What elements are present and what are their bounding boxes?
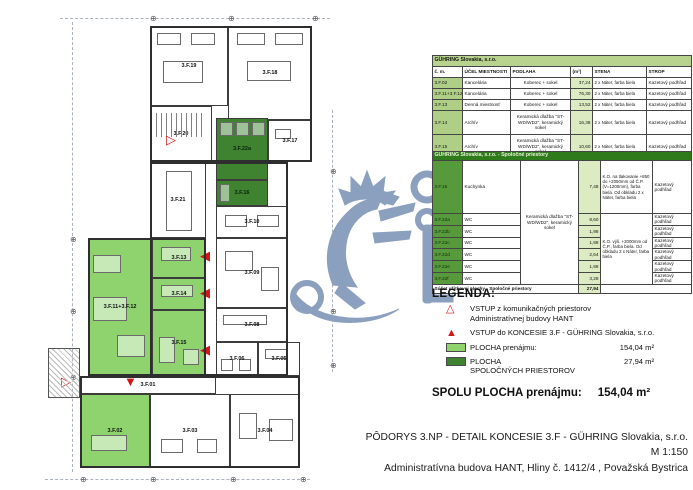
rent-cell: 3.F.14	[433, 111, 463, 135]
legend-item-rent-area: PLOCHA prenájmu: 154,04 m²	[444, 343, 684, 353]
common-cell: 3.F.22a	[433, 214, 463, 226]
grid-marker-icon	[150, 15, 157, 23]
room-3.F.08: 3.F.08	[216, 308, 288, 342]
entry-filled-triangle-icon	[200, 249, 210, 262]
room-3.F.05: 3.F.05	[258, 342, 300, 376]
room-3.F.22a: 3.F.22a	[216, 118, 268, 180]
common-cell: 1,98	[579, 237, 601, 249]
common-cell: Kazetový podhľad	[653, 261, 692, 273]
room-3.F.14: 3.F.14	[152, 278, 206, 310]
total-area-value: 154,04 m²	[598, 387, 650, 399]
room-label: 3.F.11+3.F.12	[89, 304, 151, 310]
room-3.F.16: 3.F.16	[216, 180, 268, 206]
common-color-swatch	[446, 357, 466, 366]
common-cell: WC	[463, 225, 521, 237]
floor-note: Keramická dlažba "ST-WD/WD2", keramický …	[521, 161, 579, 285]
column-header: STENA	[593, 67, 647, 78]
column-header: (m²)	[571, 67, 593, 78]
common-cell: 3.F.22d	[433, 249, 463, 261]
grid-marker-icon	[230, 476, 237, 484]
legend-item-entry-hant: VSTUP z komunikačných priestorov Adminis…	[444, 304, 684, 324]
rent-cell: Keramická dlažba "ST-WD/WD2", keramický …	[511, 111, 571, 135]
legend-item-label: VSTUP z komunikačných priestorov Adminis…	[470, 304, 591, 324]
rent-cell: 76,30	[571, 89, 593, 100]
common-cell: Kazetový podhľad	[653, 214, 692, 226]
grid-marker-icon	[312, 15, 319, 23]
rent-cell: Kazetový podhľad	[647, 89, 692, 100]
room-label: 3.F.01	[81, 382, 215, 388]
grid-marker-icon	[300, 476, 307, 484]
grid-marker-icon	[70, 308, 77, 316]
rent-cell: Kancelária	[463, 89, 511, 100]
furniture	[275, 33, 303, 45]
column-header: č. m.	[433, 67, 463, 78]
room-label: 3.F.10	[217, 219, 287, 225]
rent-color-swatch	[446, 343, 466, 352]
grid-marker-icon	[228, 15, 235, 23]
grid-marker-icon	[70, 236, 77, 244]
legend-item-label: VSTUP do KONCESIE 3.F - GÜHRING Slovakia…	[470, 328, 654, 338]
room-3.F.06: 3.F.06	[216, 342, 258, 376]
grid-marker-icon	[330, 362, 337, 370]
room-3.F.21: 3.F.21	[150, 162, 206, 238]
room-3.F.18: 3.F.18	[228, 26, 312, 120]
rent-cell: Archív	[463, 111, 511, 135]
entry-filled-triangle-icon	[200, 343, 210, 356]
rent-cell: 2 x Náter, farba biela	[593, 111, 647, 135]
common-cell: Kuchynka	[463, 161, 521, 214]
entry-filled-triangle-icon	[124, 375, 137, 388]
room-3.F.11+3.F.12: 3.F.11+3.F.12	[88, 238, 152, 376]
common-cell: 3.F.16	[433, 161, 463, 214]
room-label: 3.F.15	[153, 340, 205, 346]
room-label: 3.F.09	[217, 270, 287, 276]
furniture	[252, 122, 265, 136]
common-cell: Kazetový podhľad	[653, 249, 692, 261]
rent-cell: 3.F.13	[433, 100, 463, 111]
room-label: 3.F.08	[217, 322, 287, 328]
common-cell: WC	[463, 214, 521, 226]
furniture	[225, 251, 253, 271]
rent-cell: Koberec + sokel	[511, 100, 571, 111]
common-cell: Kazetový podhľad	[653, 225, 692, 237]
room-label: 3.F.02	[81, 428, 149, 434]
room-label: 3.F.16	[217, 190, 267, 196]
legend-item-label: PLOCHA prenájmu:	[470, 343, 537, 353]
rent-cell: 13,52	[571, 100, 593, 111]
common-cell: 1,98	[579, 261, 601, 273]
room-label: 3.F.19	[151, 63, 227, 69]
room-label: 3.F.04	[231, 428, 299, 434]
drawing-scale: M 1:150	[308, 445, 688, 460]
room-label: 3.F.17	[269, 138, 311, 144]
common-cell: 3,28	[579, 273, 601, 285]
drawing-sheet: 3.F.193.F.183.F.203.F.173.F.22a3.F.163.F…	[0, 0, 693, 490]
furniture	[157, 33, 181, 45]
common-cell: Kazetový podhľad	[653, 237, 692, 249]
room-3.F.01: 3.F.01	[80, 376, 216, 394]
common-cell: Kazetový podhľad	[653, 273, 692, 285]
room-label: 3.F.20	[151, 131, 211, 137]
room-3.F.04: 3.F.04	[230, 394, 300, 468]
balcony	[48, 348, 80, 398]
rent-cell: Kancelária	[463, 78, 511, 89]
common-cell: 3.F.22f	[433, 273, 463, 285]
room-3.F.10: 3.F.10	[216, 206, 288, 238]
rent-cell: 2 x Náter, farba biela	[593, 100, 647, 111]
room-3.F.20: 3.F.20	[150, 106, 212, 162]
common-cell: 3.F.22e	[433, 261, 463, 273]
total-area-label: SPOLU PLOCHA prenájmu:	[432, 387, 582, 399]
common-table-title: GÜHRING Slovakia, s.r.o. - Spoločné prie…	[433, 152, 692, 161]
rent-cell: Denná miestnosť	[463, 100, 511, 111]
furniture	[91, 435, 127, 451]
rent-cell: 3.F.11+3.F.12	[433, 89, 463, 100]
common-cell: Kazetový podhľad	[653, 161, 692, 214]
column-header: PODLAHA	[511, 67, 571, 78]
rent-cell: Kazetový podhľad	[647, 100, 692, 111]
room-label: 3.F.06	[217, 356, 257, 362]
grid-marker-icon	[80, 476, 87, 484]
furniture	[197, 439, 217, 453]
rent-cell: 3.F.02	[433, 78, 463, 89]
common-cell: 7,48	[579, 161, 601, 214]
common-cell: 8,60	[579, 214, 601, 226]
room-label: 3.F.03	[151, 428, 229, 434]
column-header: ÚČEL MIESTNOSTI	[463, 67, 511, 78]
room-label: 3.F.21	[151, 197, 205, 203]
rent-cell: Kazetový podhľad	[647, 78, 692, 89]
common-cell: 3.F.22c	[433, 237, 463, 249]
rent-cell: Koberec + sokel	[511, 78, 571, 89]
common-cell: WC	[463, 237, 521, 249]
room-label: 3.F.18	[229, 70, 311, 76]
room-3.F.02: 3.F.02	[80, 394, 150, 468]
rent-cell: 37,24	[571, 78, 593, 89]
furniture	[220, 122, 233, 136]
grid-marker-icon	[330, 308, 337, 316]
room-3.F.13: 3.F.13	[152, 238, 206, 278]
rent-cell: 2 x Náter, farba biela	[593, 78, 647, 89]
legend: LEGENDA: VSTUP z komunikačných priestoro…	[432, 288, 684, 399]
legend-item-label: PLOCHA SPOLOČNÝCH PRIESTOROV	[470, 357, 575, 377]
furniture	[183, 349, 199, 365]
rent-area-value: 154,04 m²	[620, 343, 684, 353]
furniture	[236, 122, 249, 136]
common-cell: WC	[463, 261, 521, 273]
title-block: PÔDORYS 3.NP - DETAIL KONCESIE 3.F - GÜH…	[308, 430, 688, 476]
room-3.F.03: 3.F.03	[150, 394, 230, 468]
common-area-value: 27,94 m²	[624, 357, 684, 367]
common-cell: 3.F.22b	[433, 225, 463, 237]
room-label: 3.F.22a	[217, 146, 267, 152]
total-area-row: SPOLU PLOCHA prenájmu: 154,04 m²	[432, 387, 684, 399]
common-cell: WC	[463, 249, 521, 261]
common-cell: 2,64	[579, 249, 601, 261]
room-label: 3.F.05	[259, 356, 299, 362]
legend-item-common-area: PLOCHA SPOLOČNÝCH PRIESTOROV 27,94 m²	[444, 357, 684, 377]
grid-marker-icon	[330, 168, 337, 176]
rent-cell: Koberec + sokel	[511, 89, 571, 100]
rent-cell: 2 x Náter, farba biela	[593, 89, 647, 100]
room-3.F.17: 3.F.17	[268, 120, 312, 162]
triangle-filled-icon	[444, 328, 470, 339]
furniture	[117, 335, 145, 357]
furniture	[161, 439, 183, 453]
grid-marker-icon	[150, 476, 157, 484]
grid-marker-icon	[330, 236, 337, 244]
furniture	[239, 413, 257, 439]
furniture	[237, 33, 265, 45]
furniture	[191, 33, 215, 45]
legend-item-entry-koncesia: VSTUP do KONCESIE 3.F - GÜHRING Slovakia…	[444, 328, 684, 339]
common-cell: 1,98	[579, 225, 601, 237]
wall-note-1: K.O. na tlakovanie +850 do +2050mm od Č.…	[601, 161, 653, 214]
room-3.F.15: 3.F.15	[152, 310, 206, 376]
column-header: STROP	[647, 67, 692, 78]
entry-filled-triangle-icon	[200, 286, 210, 299]
entry-outline-triangle-icon	[166, 133, 176, 146]
common-cell: WC	[463, 273, 521, 285]
rent-cell: Kazetový podhľad	[647, 111, 692, 135]
building-address: Administratívna budova HANT, Hliny č. 14…	[308, 461, 688, 476]
wall-note-2: K.O. výš. +2000mm od Č.P., farba biela. …	[601, 214, 653, 285]
common-area-table: GÜHRING Slovakia, s.r.o. - Spoločné prie…	[432, 151, 692, 294]
room-3.F.19: 3.F.19	[150, 26, 228, 106]
room-3.F.09: 3.F.09	[216, 238, 288, 308]
room-label: 3.F.13	[153, 255, 205, 261]
legend-title: LEGENDA:	[432, 288, 684, 300]
rent-cell: 16,38	[571, 111, 593, 135]
furniture	[93, 255, 121, 273]
triangle-outline-icon	[444, 304, 470, 315]
room-label: 3.F.14	[153, 291, 205, 297]
rent-table-title: GÜHRING Slovakia, s.r.o.	[433, 56, 692, 67]
drawing-title: PÔDORYS 3.NP - DETAIL KONCESIE 3.F - GÜH…	[308, 430, 688, 445]
